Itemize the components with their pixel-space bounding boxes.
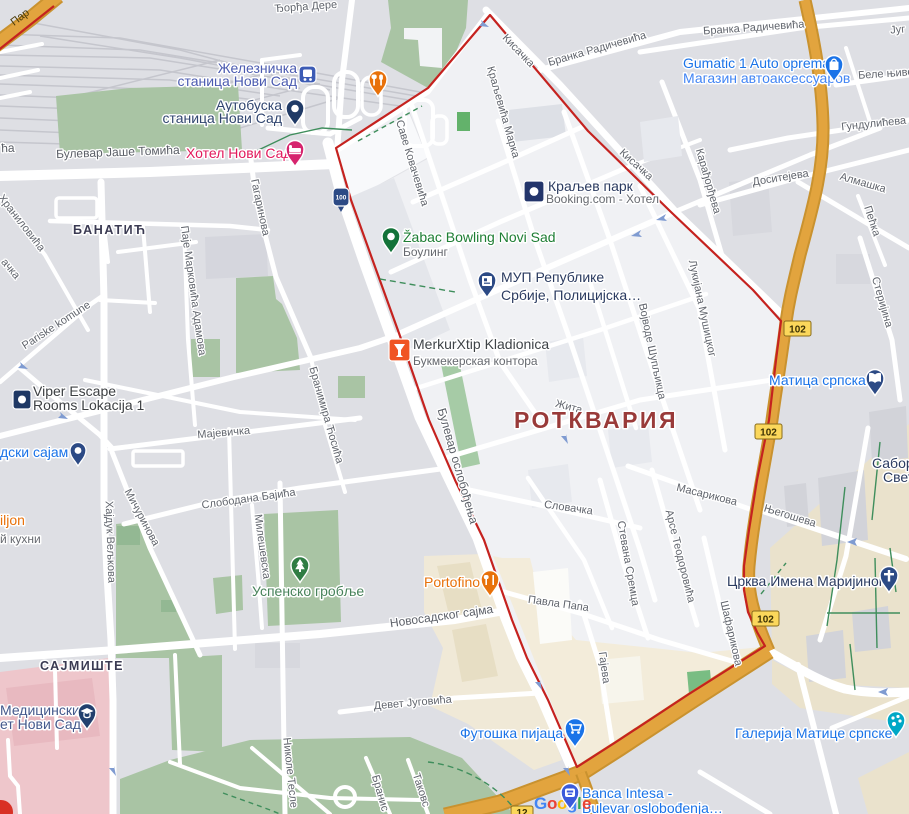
svg-text:станица Нови Сад: станица Нови Сад (177, 73, 297, 89)
svg-text:Хотел Нови Сад: Хотел Нови Сад (186, 145, 292, 161)
svg-text:iljon: iljon (0, 512, 25, 528)
svg-text:БАНАТИЋ: БАНАТИЋ (73, 223, 147, 237)
svg-text:Portofino: Portofino (424, 574, 480, 590)
svg-text:МУП Републике: МУП Републике (501, 269, 604, 285)
svg-text:Футошка пијаца: Футошка пијаца (460, 725, 563, 741)
svg-text:ћа: ћа (1, 141, 15, 155)
svg-text:Магазин автоаксессуаров: Магазин автоаксессуаров (683, 70, 850, 86)
svg-text:G: G (534, 794, 547, 813)
svg-text:100: 100 (336, 195, 347, 202)
svg-text:e: e (582, 794, 591, 813)
svg-text:o: o (547, 794, 557, 813)
svg-text:102: 102 (789, 325, 806, 336)
svg-text:й кухни: й кухни (0, 532, 41, 546)
svg-text:Banca Intesa -: Banca Intesa - (582, 785, 673, 801)
svg-text:Žabac Bowling Novi Sad: Žabac Bowling Novi Sad (403, 229, 556, 245)
svg-text:Србије, Полицијска…: Србије, Полицијска… (501, 287, 641, 303)
svg-text:12: 12 (516, 808, 528, 814)
svg-text:Gumatic 1 Auto oprema: Gumatic 1 Auto oprema (683, 55, 830, 71)
svg-text:MerkurXtip Kladionica: MerkurXtip Kladionica (413, 336, 549, 352)
svg-text:Букмекерская контора: Букмекерская контора (413, 354, 538, 368)
svg-text:102: 102 (757, 615, 774, 626)
svg-text:РОТКВАРИЯ: РОТКВАРИЯ (514, 407, 678, 433)
svg-text:Црква Имена Маријиног: Црква Имена Маријиног (727, 573, 884, 589)
svg-text:Rooms Lokacija 1: Rooms Lokacija 1 (33, 397, 144, 413)
svg-text:ет Нови Сад: ет Нови Сад (0, 716, 81, 732)
svg-text:Успенско гробље: Успенско гробље (252, 583, 364, 599)
svg-text:Светог: Светог (883, 469, 909, 485)
svg-text:Галерија Матице српске: Галерија Матице српске (735, 725, 893, 741)
svg-text:дски сајам: дски сајам (0, 444, 68, 460)
svg-text:Booking.com - Хотел: Booking.com - Хотел (546, 192, 659, 206)
svg-text:102: 102 (760, 428, 777, 439)
svg-text:станица Нови Сад: станица Нови Сад (162, 110, 282, 126)
svg-text:САЈМИШТЕ: САЈМИШТЕ (40, 659, 124, 673)
svg-text:Југ: Југ (890, 23, 906, 36)
svg-text:Bulevar oslobođenja…: Bulevar oslobođenja… (582, 800, 723, 814)
svg-text:Матица српска: Матица српска (769, 372, 866, 388)
svg-text:Боулинг: Боулинг (403, 245, 448, 259)
